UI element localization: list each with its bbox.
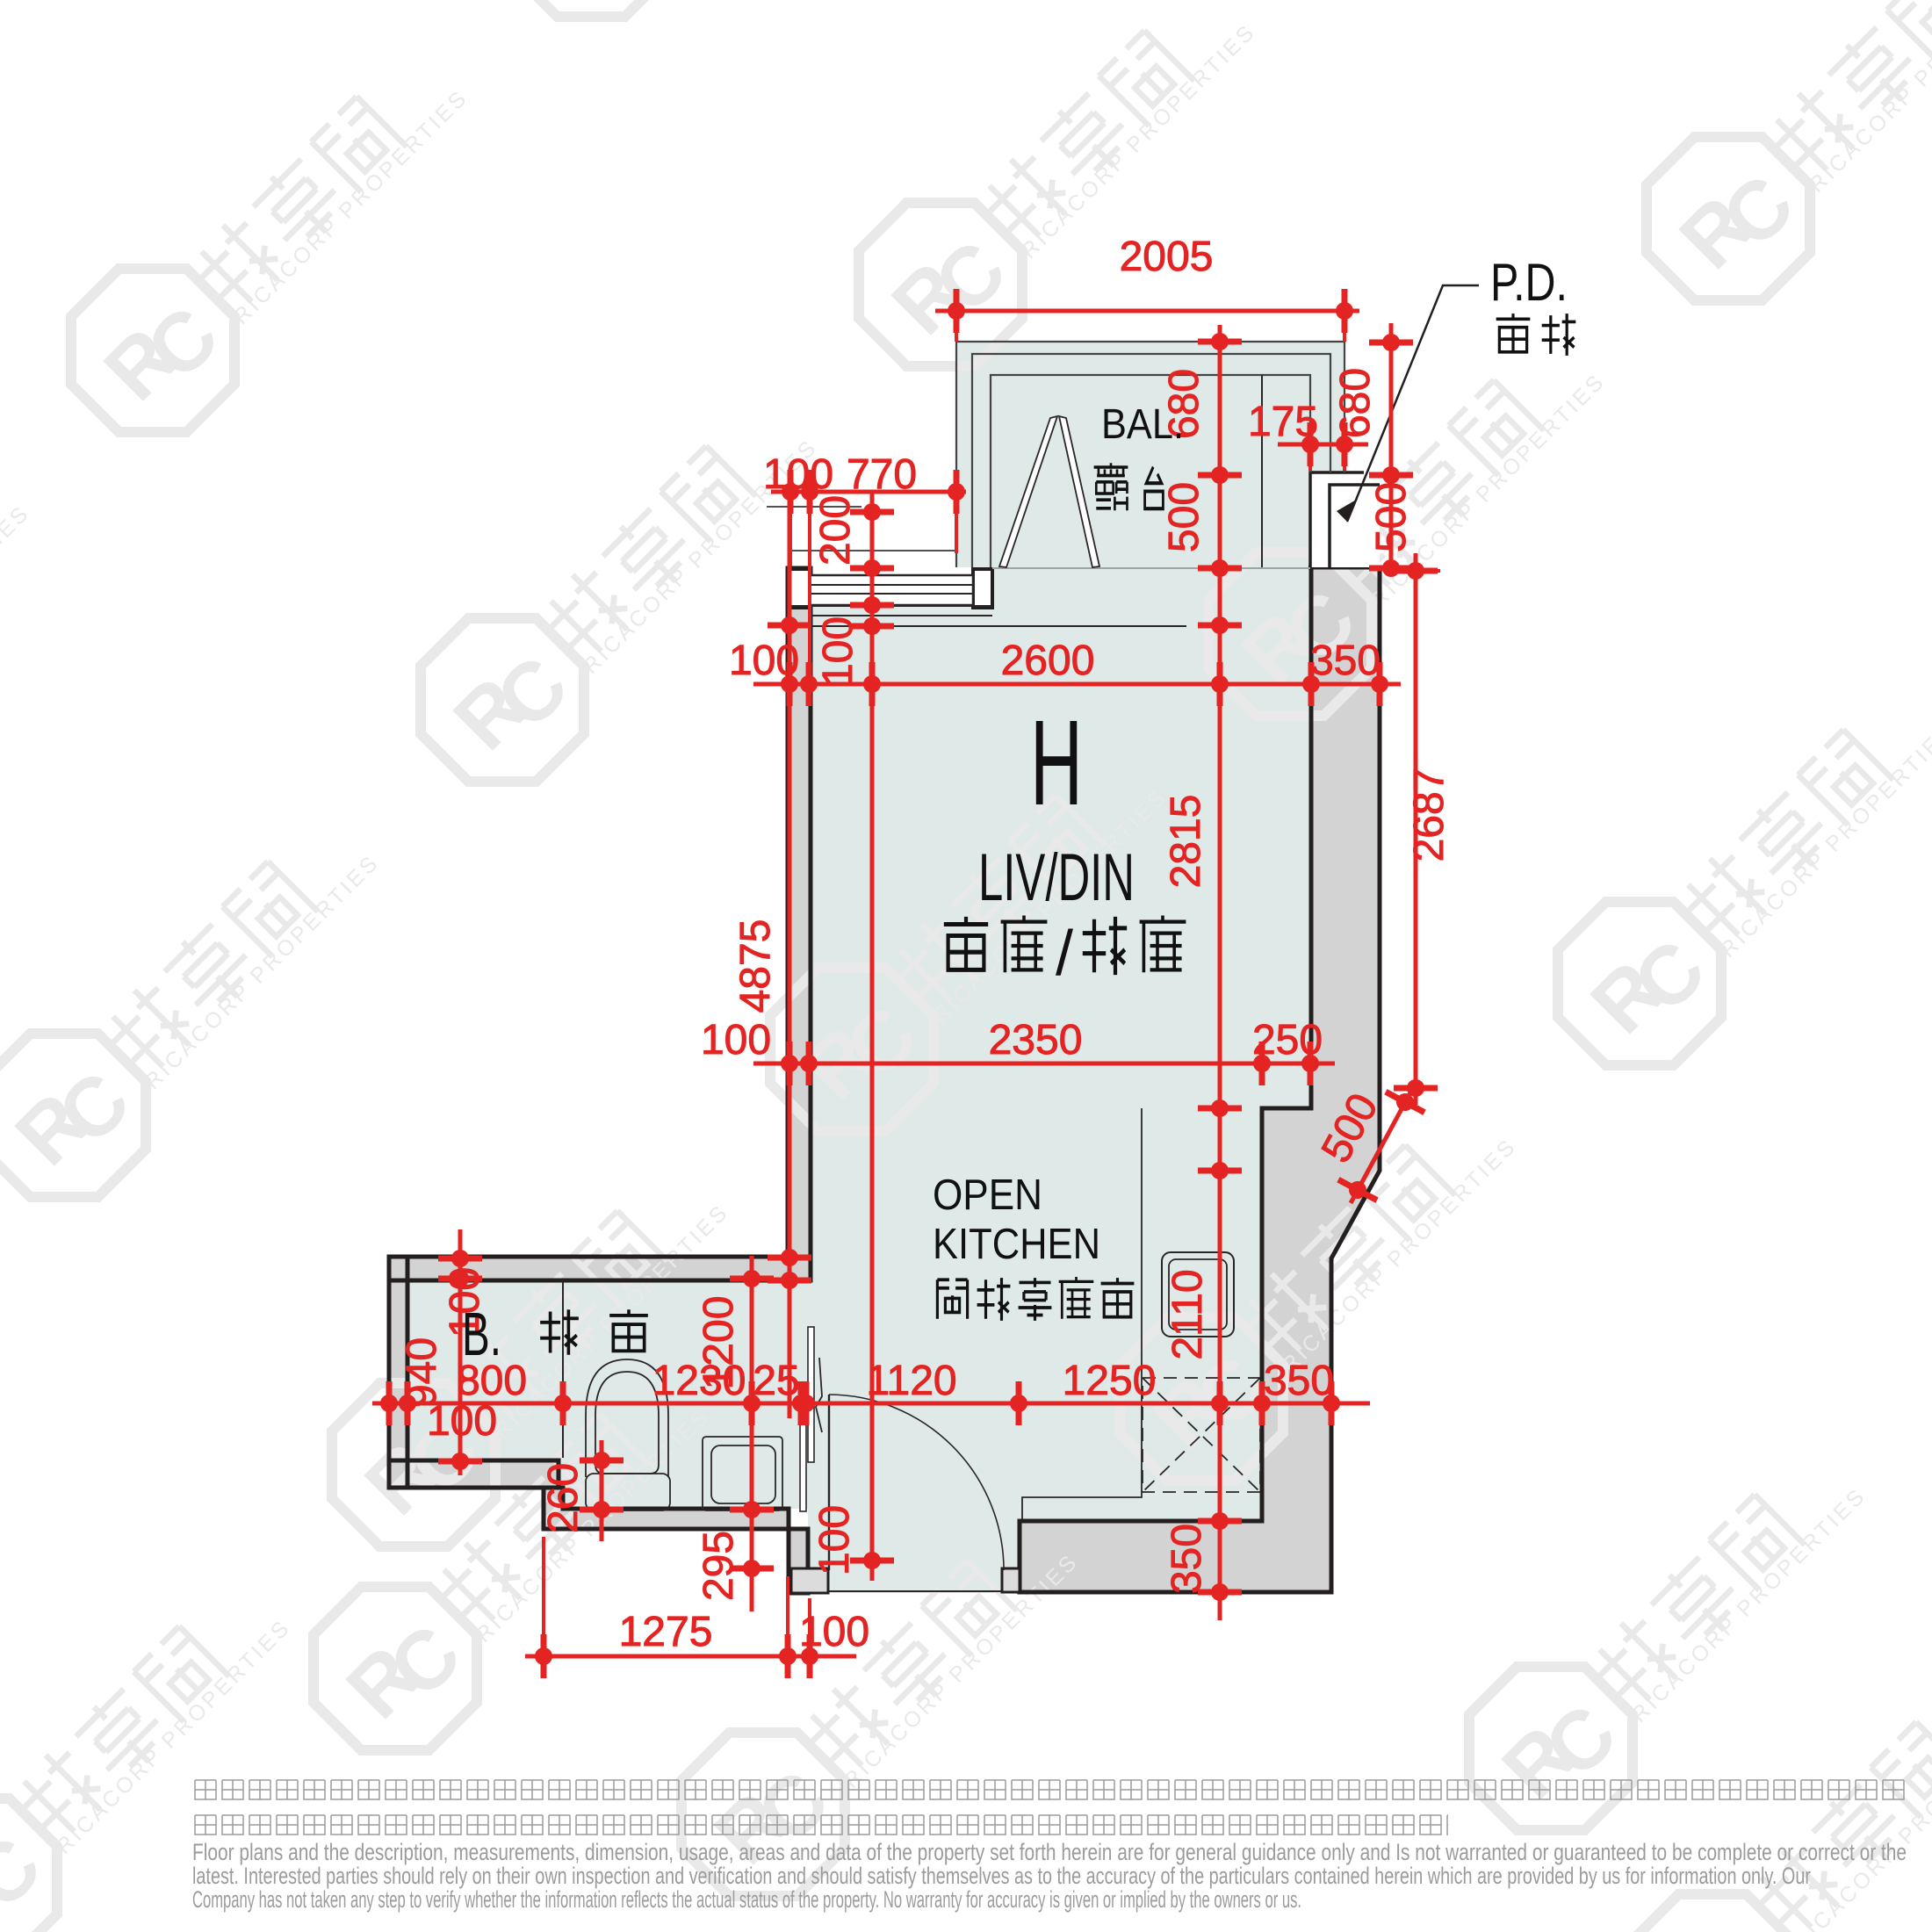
svg-text:1120: 1120 <box>866 1358 956 1404</box>
svg-text:350: 350 <box>1264 1358 1334 1404</box>
svg-text:100: 100 <box>799 1609 869 1655</box>
svg-text:350: 350 <box>1310 638 1381 684</box>
svg-text:2687: 2687 <box>1406 768 1453 862</box>
svg-text:175: 175 <box>1248 399 1318 445</box>
svg-text:500: 500 <box>1368 482 1415 552</box>
svg-text:250: 250 <box>1252 1017 1323 1063</box>
svg-text:OPEN: OPEN <box>933 1171 1042 1219</box>
svg-text:2350: 2350 <box>989 1017 1083 1063</box>
svg-text:350: 350 <box>1164 1524 1210 1594</box>
svg-text:2600: 2600 <box>1001 638 1095 684</box>
svg-text:295: 295 <box>696 1531 742 1601</box>
svg-text:P.D.: P.D. <box>1490 253 1568 312</box>
svg-text:latest. Interested parties sho: latest. Interested parties should rely o… <box>192 1863 1811 1889</box>
svg-text:KITCHEN: KITCHEN <box>933 1221 1100 1268</box>
svg-text:H: H <box>1030 696 1083 831</box>
svg-text:770: 770 <box>847 451 917 498</box>
svg-text:100: 100 <box>815 616 861 687</box>
svg-text:100: 100 <box>763 451 833 498</box>
svg-text:/: / <box>1056 919 1073 989</box>
svg-text:260: 260 <box>540 1463 587 1533</box>
svg-text:LIV/DIN: LIV/DIN <box>978 840 1135 915</box>
svg-text:B.: B. <box>462 1300 501 1368</box>
svg-text:25: 25 <box>753 1358 799 1404</box>
svg-text:200: 200 <box>812 495 859 566</box>
svg-text:680: 680 <box>1332 368 1379 438</box>
svg-text:Floor plans and the descriptio: Floor plans and the description, measure… <box>192 1839 1907 1865</box>
svg-text:1250: 1250 <box>1063 1358 1157 1404</box>
svg-text:100: 100 <box>811 1505 858 1575</box>
svg-text:500: 500 <box>1161 482 1207 552</box>
svg-text:2005: 2005 <box>1120 234 1214 280</box>
svg-text:2815: 2815 <box>1163 795 1209 889</box>
svg-text:1275: 1275 <box>619 1609 713 1655</box>
svg-text:2110: 2110 <box>1164 1269 1211 1359</box>
svg-text:100: 100 <box>701 1017 771 1063</box>
svg-text:1200: 1200 <box>696 1296 742 1390</box>
svg-text:940: 940 <box>399 1337 445 1408</box>
svg-text:BAL.: BAL. <box>1101 401 1184 448</box>
svg-text:4875: 4875 <box>732 919 779 1013</box>
svg-text:Company has not taken any step: Company has not taken any step to verify… <box>192 1886 1301 1913</box>
